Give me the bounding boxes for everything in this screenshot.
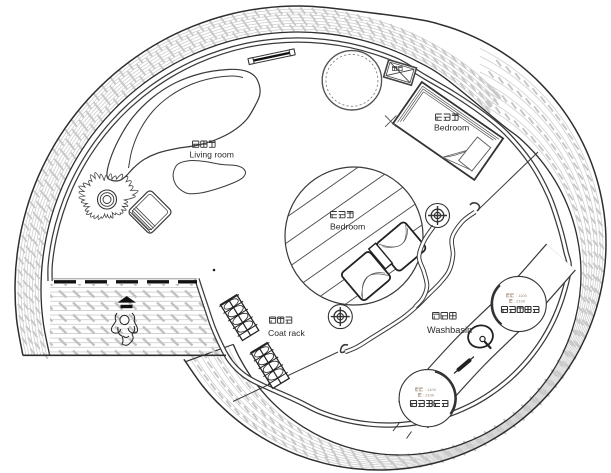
svg-text:Bedroom: Bedroom (330, 222, 365, 232)
svg-text:: 1100: : 1100 (516, 293, 528, 298)
svg-text:Coat rack: Coat rack (268, 328, 305, 338)
svg-text:: 2100: : 2100 (423, 393, 435, 398)
svg-text:: 2100: : 2100 (514, 299, 526, 304)
svg-text:: 1100: : 1100 (425, 387, 437, 392)
svg-text:Washbasin: Washbasin (427, 325, 472, 335)
svg-text:Bedroom: Bedroom (434, 123, 469, 133)
svg-text:Living room: Living room (190, 150, 234, 160)
